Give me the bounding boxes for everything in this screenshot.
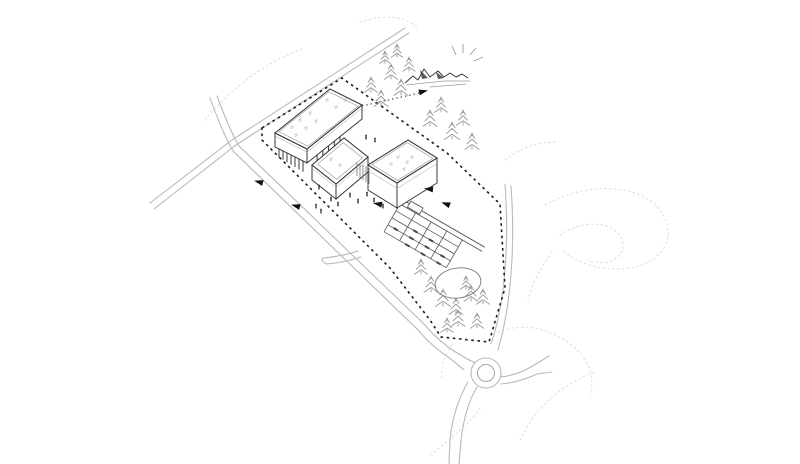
conifer-tree-icon (394, 79, 408, 95)
contour-line (505, 142, 556, 160)
site-plan-canvas (0, 0, 800, 464)
contour-line (430, 408, 480, 455)
view-axis-dotted-line (362, 93, 419, 106)
person-figure (374, 138, 376, 142)
roundabout (471, 358, 501, 388)
person-figure (366, 192, 368, 196)
sun-ray (470, 48, 476, 55)
sun-ray (474, 57, 483, 61)
mountain-shading (420, 70, 428, 79)
person-figure (349, 193, 351, 197)
person-head (330, 197, 332, 199)
direction-arrow (373, 202, 382, 208)
person-head (320, 209, 322, 211)
mountain-sketch (405, 44, 483, 87)
conifer-tree-icon (384, 64, 397, 79)
person-head (382, 204, 384, 206)
road-edge (322, 258, 327, 264)
roundabout-outer-circle (471, 358, 501, 388)
parked-car-mark (421, 253, 425, 256)
road-edge (459, 387, 477, 464)
parked-car-mark (425, 246, 429, 249)
person-head (349, 193, 351, 195)
person-figure (318, 185, 320, 189)
contour-line (545, 189, 668, 269)
conifer-tree-icon (434, 97, 447, 112)
parked-car-mark (409, 237, 413, 240)
conifer-tree-icon (380, 51, 391, 63)
contour-lines (205, 17, 668, 455)
view-axis-arrowhead (418, 89, 427, 95)
buildings (275, 89, 437, 208)
person-figure (373, 198, 375, 202)
person-head (337, 202, 339, 204)
conifer-tree-icon (391, 44, 402, 57)
contour-line (520, 372, 595, 440)
parked-car-mark (440, 255, 444, 258)
person-head (318, 185, 320, 187)
person-head (357, 199, 359, 201)
contour-line (442, 345, 452, 380)
person-figure (365, 135, 367, 139)
road-edge (449, 382, 468, 464)
person-figure (382, 204, 384, 208)
road-edge (150, 28, 405, 203)
conifer-tree-icon (403, 57, 415, 71)
site-plan-svg (0, 0, 800, 464)
person-head (366, 192, 368, 194)
road-edge (491, 184, 507, 344)
person-head (365, 135, 367, 137)
parked-car-mark (394, 228, 398, 231)
road-edge (501, 372, 552, 384)
sun-ray (452, 46, 456, 55)
contour-line (560, 224, 623, 263)
person-head (315, 204, 317, 206)
person-head (373, 198, 375, 200)
view-axis-arrow (362, 89, 428, 106)
contour-line (528, 252, 552, 300)
conifer-tree-icon (414, 259, 427, 274)
contour-line (498, 327, 592, 395)
conifer-tree-icon (364, 77, 377, 92)
conifer-tree-icon (470, 313, 483, 328)
parked-car-mark (413, 230, 417, 233)
conifer-tree-icon (451, 310, 465, 326)
right-building (368, 140, 437, 208)
person-figure (357, 199, 359, 203)
direction-arrow (441, 202, 450, 208)
person-figure (320, 209, 322, 213)
conifer-tree-icon (456, 110, 469, 125)
mountain-base-line (430, 84, 466, 87)
conifer-tree-icon (476, 289, 489, 304)
person-figure (315, 204, 317, 208)
parking-lot (384, 199, 485, 268)
parking-drive-edge (398, 203, 482, 252)
person-head (374, 138, 376, 140)
parking-kiosk (407, 201, 423, 214)
contour-line (360, 17, 418, 28)
conifer-tree-icon (374, 90, 388, 106)
conifer-tree-icon (465, 133, 479, 149)
parked-car-mark (436, 262, 440, 265)
parked-car-mark (429, 239, 433, 242)
contour-line (205, 48, 305, 120)
direction-arrow (254, 180, 263, 186)
conifer-tree-icon (449, 298, 463, 314)
roads (150, 28, 552, 464)
parked-car-mark (405, 244, 409, 247)
person-figure (337, 202, 339, 206)
conifer-tree-icon (441, 318, 453, 332)
person-figure (330, 197, 332, 201)
road-edge (217, 96, 475, 363)
